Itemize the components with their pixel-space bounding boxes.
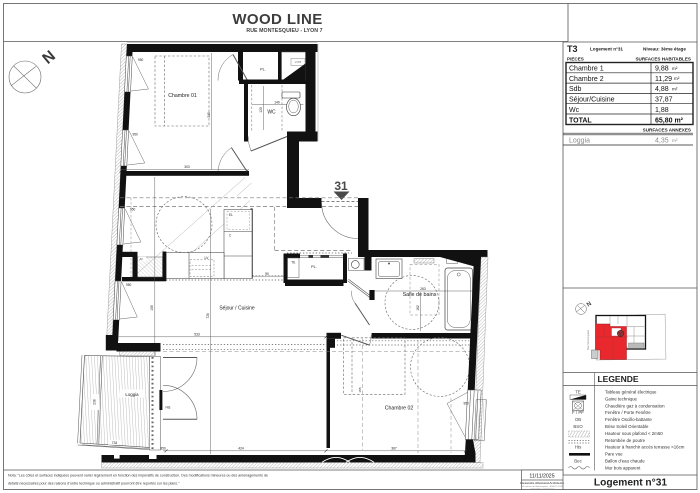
svg-text:Fenêtre / Porte Fenêtre: Fenêtre / Porte Fenêtre	[605, 410, 651, 415]
svg-text:EL: EL	[229, 213, 233, 217]
svg-text:Retombée de poutre: Retombée de poutre	[605, 438, 646, 443]
svg-text:PIECES: PIECES	[567, 57, 584, 62]
svg-text:1,88: 1,88	[655, 107, 669, 114]
svg-text:315: 315	[207, 112, 211, 118]
svg-text:950: 950	[133, 133, 139, 137]
svg-text:367: 367	[391, 447, 397, 451]
svg-text:950: 950	[126, 283, 132, 287]
svg-text:PL.: PL.	[311, 265, 317, 269]
svg-text:Chaudière gaz à condensation: Chaudière gaz à condensation	[605, 403, 665, 408]
svg-text:SURFACES HABITABLES: SURFACES HABITABLES	[635, 57, 691, 62]
svg-text:PL.: PL.	[260, 68, 266, 72]
svg-text:4,35: 4,35	[655, 138, 669, 145]
svg-text:11/11/2025: 11/11/2025	[529, 474, 554, 480]
svg-text:11,29: 11,29	[655, 76, 672, 83]
svg-text:OB: OB	[575, 417, 581, 422]
svg-text:Séjour/Cuisine: Séjour/Cuisine	[569, 97, 615, 104]
svg-text:120: 120	[259, 107, 263, 113]
svg-text:950: 950	[464, 402, 470, 406]
svg-text:N: N	[586, 301, 593, 308]
svg-text:950: 950	[138, 58, 144, 62]
svg-text:Logement n°31: Logement n°31	[594, 478, 667, 489]
svg-text:238: 238	[92, 399, 96, 405]
svg-text:Séjour / Cuisine: Séjour / Cuisine	[219, 305, 255, 311]
svg-text:Chambre 01: Chambre 01	[168, 93, 197, 99]
svg-text:162: 162	[416, 305, 420, 311]
svg-text:Gaine technique: Gaine technique	[605, 396, 638, 401]
svg-text:303: 303	[184, 165, 190, 169]
svg-text:WC: WC	[267, 110, 276, 116]
svg-text:Pare vue: Pare vue	[605, 452, 623, 457]
svg-text:Rue Montesquieu: Rue Montesquieu	[586, 329, 590, 350]
svg-text:Wc: Wc	[569, 107, 580, 114]
svg-text:734: 734	[112, 441, 118, 445]
svg-text:Loggia: Loggia	[125, 392, 139, 397]
svg-text:140: 140	[274, 100, 280, 104]
svg-text:159: 159	[150, 305, 154, 311]
svg-text:Sdb: Sdb	[569, 86, 582, 93]
svg-text:Chambre 02: Chambre 02	[385, 406, 414, 412]
svg-text:TE: TE	[291, 261, 295, 265]
svg-text:N: N	[39, 47, 59, 67]
svg-text:Hts: Hts	[166, 406, 171, 410]
svg-text:m²: m²	[672, 66, 678, 71]
svg-text:SURFACES ANNEXES: SURFACES ANNEXES	[643, 128, 691, 133]
svg-text:728: 728	[206, 313, 210, 319]
svg-text:65,80 m²: 65,80 m²	[655, 117, 684, 124]
svg-text:m²: m²	[672, 138, 678, 143]
svg-text:F / PF: F / PF	[572, 410, 584, 415]
svg-text:Tableau général électrique: Tableau général électrique	[605, 390, 657, 395]
svg-text:GTPB: GTPB	[295, 61, 302, 64]
svg-text:Alexandre Allemand Architecte: Alexandre Allemand Architecte	[520, 481, 564, 485]
svg-text:533: 533	[194, 332, 200, 336]
svg-text:Mur bois apparent: Mur bois apparent	[605, 465, 641, 470]
svg-text:Hauteur à franchir accès terra: Hauteur à franchir accès terrasse >16cm	[605, 445, 685, 450]
svg-text:Logement n°31: Logement n°31	[590, 47, 623, 52]
svg-text:37,87: 37,87	[655, 97, 673, 104]
svg-text:Nota: "Les côtes et surfaces i: Nota: "Les côtes et surfaces indiquées p…	[8, 473, 268, 477]
svg-text:Brise Soleil Orientable: Brise Soleil Orientable	[605, 424, 649, 429]
svg-text:155: 155	[358, 387, 362, 392]
svg-text:m²: m²	[674, 76, 680, 81]
svg-text:Hauteur sous plafond < 2m50: Hauteur sous plafond < 2m50	[605, 431, 663, 436]
svg-text:Ballon d'eau chaude: Ballon d'eau chaude	[605, 459, 645, 464]
svg-text:4,88: 4,88	[655, 86, 669, 93]
svg-text:90: 90	[265, 272, 269, 276]
svg-text:Hts: Hts	[575, 445, 582, 450]
svg-text:RUE MONTESQUIEU - LYON 7: RUE MONTESQUIEU - LYON 7	[246, 28, 322, 34]
svg-text:Chambre 2: Chambre 2	[569, 76, 604, 83]
svg-text:Fenêtre Oscillo-battante: Fenêtre Oscillo-battante	[605, 417, 652, 422]
svg-text:WOOD LINE: WOOD LINE	[232, 11, 322, 28]
svg-text:263: 263	[420, 287, 426, 291]
svg-text:LEGENDE: LEGENDE	[597, 374, 638, 384]
svg-text:424: 424	[238, 447, 244, 451]
svg-text:détails nécessaires pour des r: détails nécessaires pour des raisons d'o…	[8, 481, 180, 485]
svg-text:contact@aa-architecte.fr: contact@aa-architecte.fr	[530, 488, 554, 491]
svg-text:T3: T3	[567, 44, 578, 54]
svg-text:850: 850	[160, 446, 166, 450]
svg-text:Loggia: Loggia	[569, 138, 590, 145]
svg-text:BSO: BSO	[573, 424, 583, 429]
svg-text:TOTAL: TOTAL	[569, 117, 592, 124]
svg-text:9,88: 9,88	[655, 66, 669, 73]
svg-text:Salle de bains: Salle de bains	[403, 292, 437, 298]
svg-text:Bec: Bec	[574, 459, 582, 464]
svg-text:Chambre 1: Chambre 1	[569, 66, 604, 73]
svg-text:TE: TE	[575, 390, 581, 395]
svg-text:Niveau: 3ème étage: Niveau: 3ème étage	[643, 47, 686, 52]
svg-text:31: 31	[334, 179, 348, 193]
svg-text:m²: m²	[672, 86, 678, 91]
